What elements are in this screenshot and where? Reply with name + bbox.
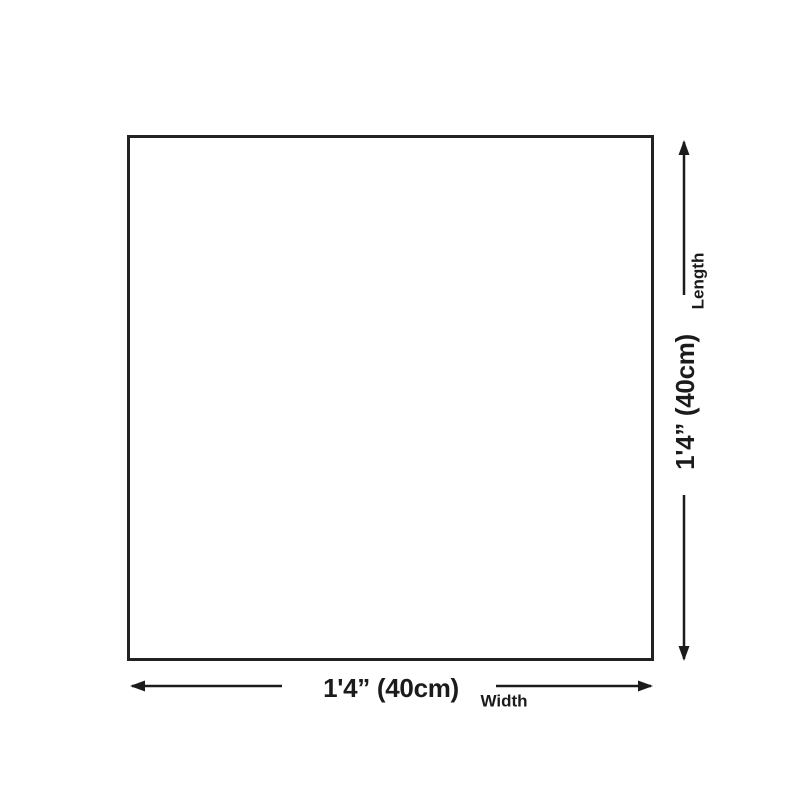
width-axis-label: Width (480, 693, 527, 710)
length-value-label: 1'4” (40cm) (672, 334, 698, 470)
length-axis-label: Length (690, 253, 707, 310)
width-value-label: 1'4” (40cm) (323, 675, 459, 701)
dimension-diagram: 1'4” (40cm) Length 1'4” (40cm) Width (0, 0, 800, 800)
